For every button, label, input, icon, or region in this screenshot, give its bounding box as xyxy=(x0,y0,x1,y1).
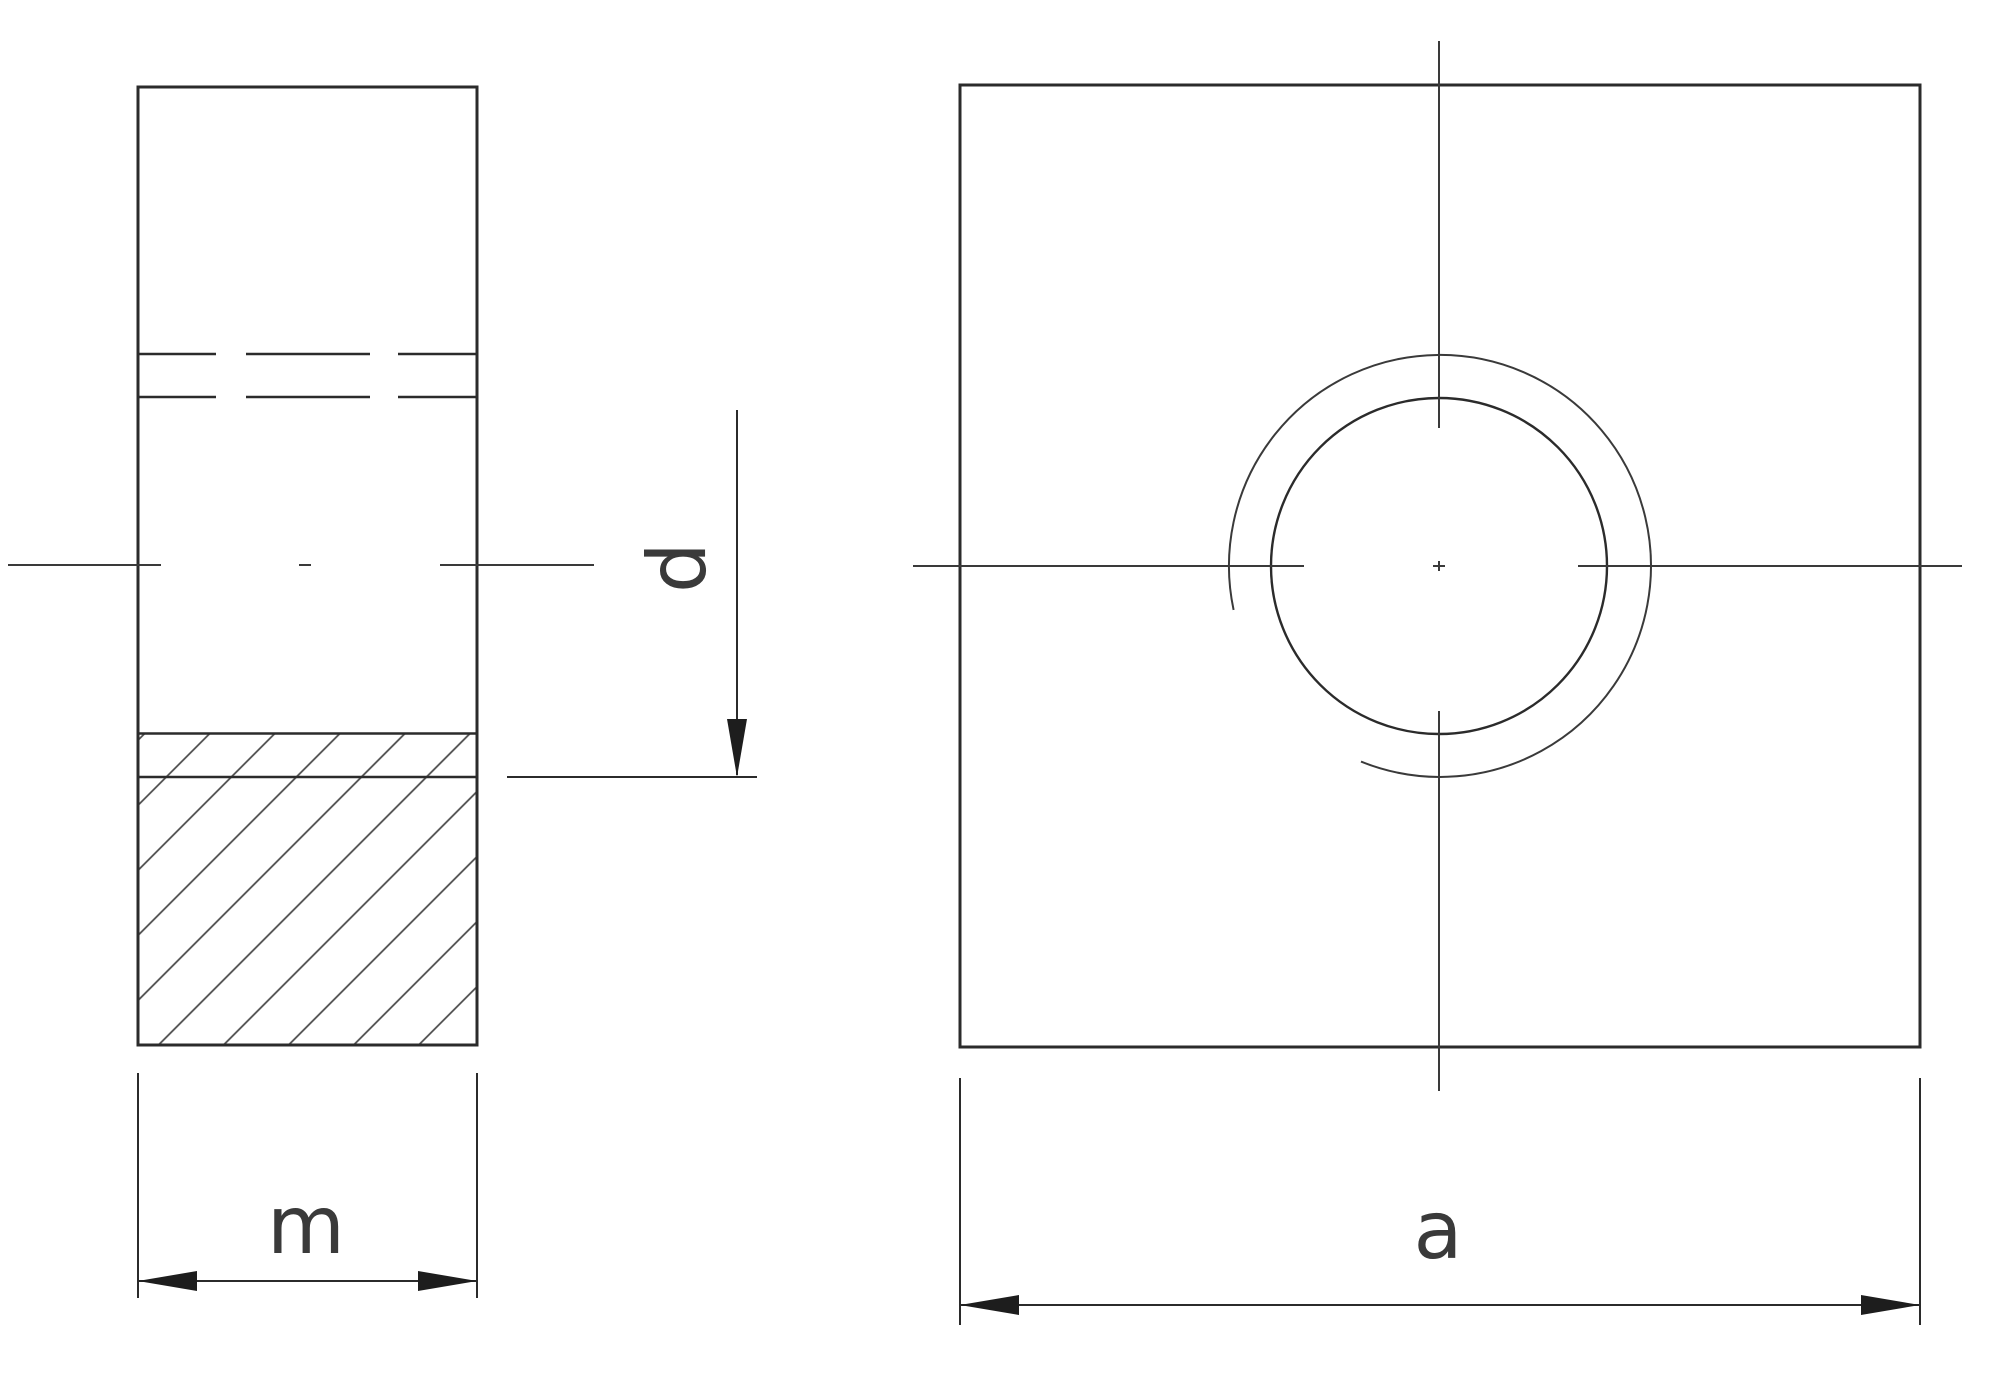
square-nut-drawing: m d a xyxy=(0,0,2000,1381)
dimension-label-m: m xyxy=(267,1179,345,1272)
section-hatch-area xyxy=(140,735,476,1044)
dimension-label-a: a xyxy=(1413,1184,1462,1277)
arrow-right-icon xyxy=(1861,1295,1920,1315)
arrow-right-icon xyxy=(418,1271,477,1291)
dimension-d: d xyxy=(507,410,757,777)
dimension-m: m xyxy=(138,1073,477,1298)
arrow-left-icon xyxy=(138,1271,197,1291)
technical-drawing-canvas: m d a xyxy=(0,0,2000,1381)
arrow-down-icon xyxy=(727,719,747,777)
dimension-a: a xyxy=(960,1078,1920,1325)
side-section-view xyxy=(8,87,594,1045)
dimension-label-d: d xyxy=(631,542,724,593)
arrow-left-icon xyxy=(960,1295,1019,1315)
front-view xyxy=(913,41,1962,1091)
